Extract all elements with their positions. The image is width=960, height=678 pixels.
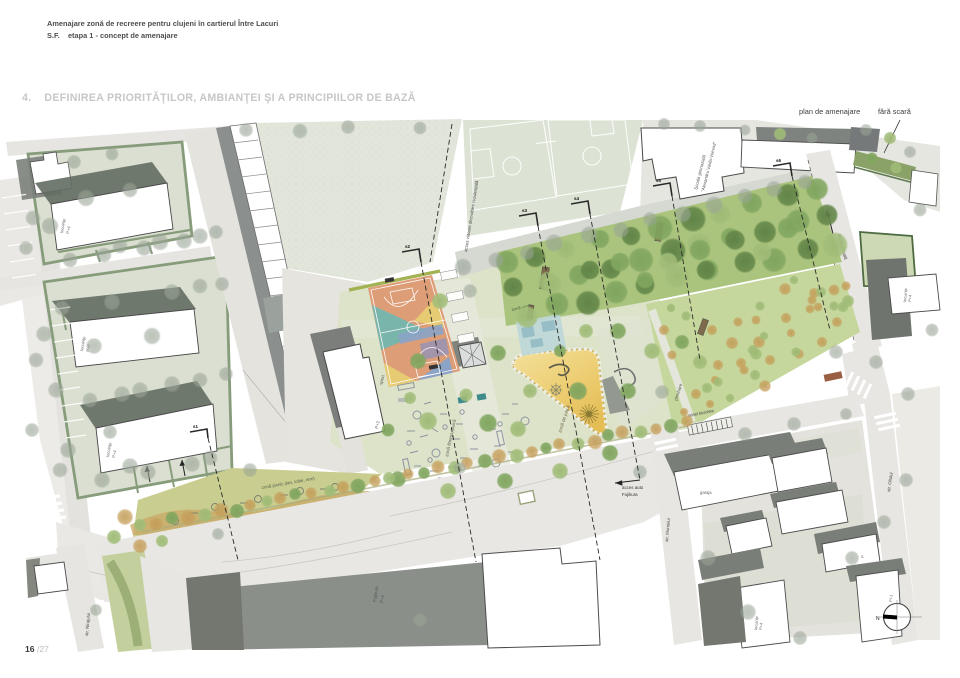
svg-text:16: 16 (25, 644, 35, 654)
svg-text:s3: s3 (522, 208, 528, 213)
svg-text:acces auto: acces auto (622, 485, 644, 490)
svg-text:fără scară: fără scară (878, 107, 912, 116)
svg-text:s1: s1 (193, 424, 199, 429)
svg-text:/27: /27 (37, 644, 49, 654)
svg-text:s6: s6 (776, 158, 782, 163)
svg-text:s5: s5 (656, 178, 662, 183)
svg-text:plan de amenajare: plan de amenajare (799, 107, 860, 116)
svg-text:N: N (876, 616, 880, 622)
svg-text:S.F. etapa 1 - concept de a: S.F. etapa 1 - concept de amenajare (47, 31, 178, 40)
svg-text:P+4: P+4 (907, 294, 913, 302)
svg-text:4. DEFINIREA PRIORITĂŢILOR,: 4. DEFINIREA PRIORITĂŢILOR, AMBIANŢEI ŞI… (22, 91, 416, 104)
svg-text:garaja: garaja (700, 490, 712, 495)
svg-text:Amenajare zonă de recreere pen: Amenajare zonă de recreere pentru clujen… (47, 19, 278, 28)
svg-text:s2: s2 (405, 244, 411, 249)
svg-text:s4: s4 (574, 196, 580, 201)
svg-text:Fujikura: Fujikura (622, 492, 638, 497)
svg-text:P+4: P+4 (758, 622, 764, 630)
svg-text:P+1: P+1 (888, 594, 894, 602)
